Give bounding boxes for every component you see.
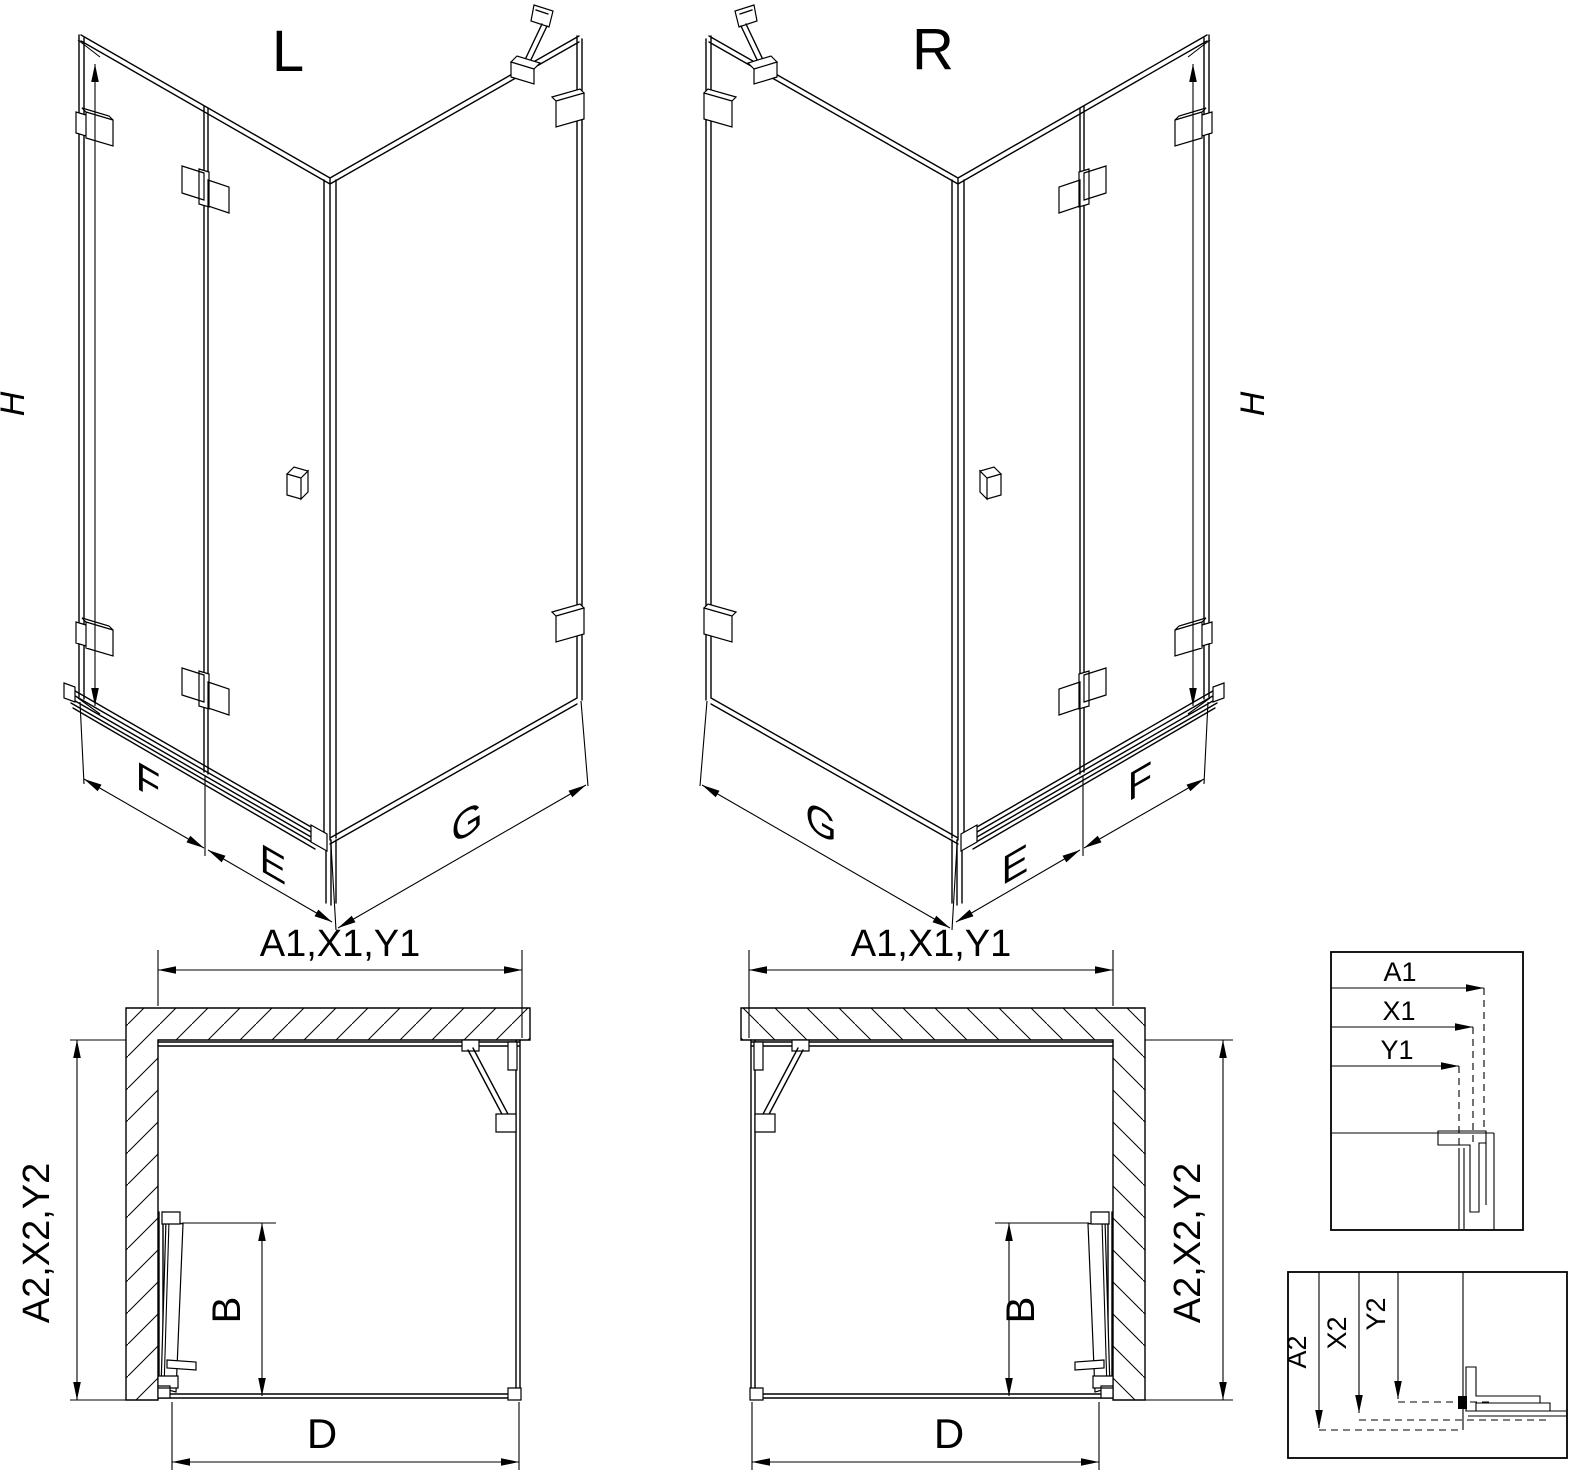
hinges: [182, 166, 229, 715]
dim-label-side: A2,X2,Y2: [16, 1163, 58, 1324]
detail-box-bottom: A2 X2 Y2: [1282, 1272, 1567, 1458]
view-title-right: R: [912, 17, 954, 82]
iso-view-right: R H G E F: [700, 5, 1272, 930]
dim-label-e: E: [1002, 835, 1029, 895]
dim-label-top: A1,X1,Y1: [851, 923, 1012, 965]
detail-box-top: A1 X1 Y1: [1331, 952, 1523, 1230]
plan-view-left: A1,X1,Y1 A2,X2,Y2 B D: [16, 923, 530, 1470]
view-title-left: L: [272, 19, 304, 84]
dim-label-f: F: [136, 753, 160, 812]
glass-lines: [158, 1040, 520, 1398]
detail-dim-a2: A2: [1282, 1335, 1312, 1368]
mirrored-geometry: [741, 950, 1145, 1470]
plan-view-right: A1,X1,Y1 A2,X2,Y2 B D: [741, 923, 1233, 1470]
dim-label-height: H: [1234, 391, 1272, 416]
dim-label-f: F: [1128, 753, 1152, 812]
dim-label-g: G: [805, 792, 836, 854]
detail-dim-x1: X1: [1382, 996, 1415, 1026]
detail-dim-a1: A1: [1383, 957, 1416, 987]
shower-enclosure-diagram: L H F E G R H G E F: [0, 0, 1582, 1484]
detail-dim-y1: Y1: [1380, 1035, 1413, 1065]
dim-label-entry: D: [934, 1410, 964, 1457]
iso-view-left: L H F E G: [0, 5, 588, 930]
dim-label-side: A2,X2,Y2: [1167, 1163, 1209, 1324]
technical-drawing-page: L H F E G R H G E F: [0, 0, 1582, 1484]
dim-label-door: B: [205, 1297, 249, 1324]
support-bar: [462, 1040, 521, 1400]
walls-hatched: [126, 1008, 530, 1400]
dim-label-height: H: [0, 391, 32, 416]
door-handle-icon: [287, 467, 308, 499]
dim-label-top: A1,X1,Y1: [260, 923, 421, 965]
sill-profile: [64, 683, 327, 851]
dim-label-door: B: [999, 1297, 1043, 1324]
dim-label-entry: D: [307, 1410, 337, 1457]
dim-label-g: G: [451, 792, 482, 854]
detail-dim-y2: Y2: [1361, 1297, 1391, 1330]
detail-dim-x2: X2: [1322, 1316, 1352, 1349]
dim-label-e: E: [260, 835, 287, 895]
support-bar: [511, 5, 553, 84]
